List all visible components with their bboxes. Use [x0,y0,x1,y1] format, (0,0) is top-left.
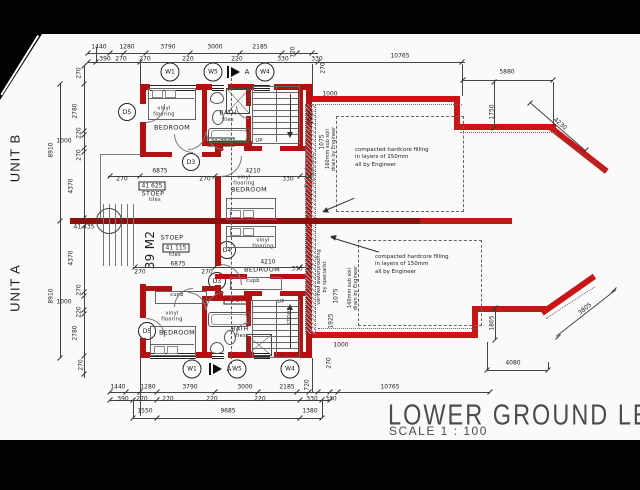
wall-segment [215,176,221,218]
top-mat [0,0,640,34]
dimension-label: 3790 [160,44,175,51]
section-bar-bottom [209,363,211,375]
dimension-label: 390 [117,396,128,403]
window-marker-w4-bottom: W4 [281,360,300,379]
wall-segment [140,122,146,154]
dimension-label: 10765 [380,384,399,391]
basin [210,92,224,104]
window [212,85,224,91]
dim-tick [57,355,63,361]
dimension-label: 220 [76,127,83,138]
dimension-label: 1550 [137,408,152,415]
pillow [165,90,176,98]
corner-fold [0,34,42,100]
dimension-label: 270 [162,396,173,403]
dimension-line [487,370,548,371]
wall-segment [244,291,262,296]
pillow [154,346,165,354]
wall-segment [196,352,212,358]
dimension-label: 220 [231,56,242,63]
bed-line [226,236,274,237]
stair-tread [252,330,298,331]
stair-tread [252,110,298,111]
dimension-label: 2185 [252,44,267,51]
pillow [230,210,241,218]
shower-duct-box [226,88,250,114]
stair-tread [252,122,298,123]
line [100,154,101,218]
dimension-line [312,358,313,392]
line [100,154,141,155]
dimension-label: 1925 [328,313,335,328]
dimension-label: 1075 [319,134,326,149]
line [552,131,608,172]
wall-segment [454,124,556,130]
dimension-label: 270 [201,269,212,276]
wall-segment [312,332,478,338]
cupboard [230,277,282,290]
dimension-label: 1440 [91,44,106,51]
room-label-area-a: 39 M2 [144,231,158,270]
dimension-label: 4370 [68,250,75,265]
dimension-label: 270 [78,359,85,370]
toilet [212,110,224,125]
dimension-label: 1925 [308,109,315,124]
line [121,204,122,266]
dimension-label: 720 [290,46,297,57]
dimension-label: 2780 [72,103,79,118]
dimension-label: 9685 [220,408,235,415]
dimension-label: 330 [291,266,302,273]
dimension-label: 1380 [302,408,317,415]
manhole-circle [96,208,122,234]
section-label-top: A [245,68,250,76]
pillow [243,228,254,236]
wall-segment [140,152,172,157]
dimension-label: 1075 [333,288,340,303]
line [312,104,462,105]
pillow [243,210,254,218]
section-label-bottom: A [227,365,232,373]
door-arc [206,292,224,310]
wall-segment [215,224,221,266]
dimension-label: 220 [182,56,193,63]
dimension-label: 2185 [279,384,294,391]
stair-tread [252,348,298,349]
dimension-label: 330 [325,396,336,403]
floor-plan-sheet: UNIT B UNIT A vinyl flooring BEDROOM BAT… [0,0,640,490]
line [127,204,128,266]
dimension-label: 8910 [48,288,55,303]
dimension-label: 1000 [333,342,348,349]
section-bar-top [227,66,229,78]
door-marker-d3-b: D3 [182,153,200,171]
dim-tick [319,415,325,421]
section-arrow-icon [231,67,240,77]
wall-segment [280,146,306,151]
dimension-label: 270 [199,176,210,183]
dimension-label: 330 [282,176,293,183]
room-label-stoep-a: STOEP [161,234,184,241]
bed-line [226,208,274,209]
window-marker-w4-top: W4 [256,63,275,82]
dim-tick [487,389,493,395]
dimension-label: 8910 [48,142,55,157]
door-marker-d5-b: D5 [118,103,136,121]
hardcore-region [358,240,482,326]
dimension-label: 1805 [489,315,496,330]
wall-segment [140,90,146,104]
dimension-label: 1280 [119,44,134,51]
stair-arrow-head [287,304,293,310]
dimension-label: 1000 [56,138,71,145]
wall-segment [215,285,221,291]
dimension-label: 330 [277,56,288,63]
bathtub-inner [211,130,247,141]
bed-line [148,98,194,99]
dimension-line [110,392,490,393]
room-label-vinyl-a1: vinyl flooring [160,311,184,323]
dimension-label: 270 [76,67,83,78]
dimension-label: 4210 [245,168,260,175]
wall-segment [202,152,216,157]
dimension-line [140,62,141,84]
level-b-stoep: 41 625 [139,182,166,191]
dimension-label: 270 [139,56,150,63]
stair-arrow-head [287,132,293,138]
dimension-label: 3790 [182,384,197,391]
dim-tick [545,367,551,373]
basin [210,342,224,354]
dimension-label: 330 [306,396,317,403]
dimension-line [312,64,313,96]
section-arrow-icon [213,364,222,374]
stair-tread [252,318,298,319]
dimension-label: 4080 [505,360,520,367]
dimension-label: 220 [254,396,265,403]
level-a-stoep: 41 115 [163,244,190,253]
stair-tread [252,128,298,129]
dimension-label: 270 [134,269,145,276]
wall-segment [280,291,306,296]
room-label-bedroom-b1: BEDROOM [154,124,190,131]
stair-rail [276,86,277,142]
wall-segment [140,338,146,358]
stair-rail [276,300,277,356]
dimension-label: 270 [76,149,83,160]
dimension-label: 10765 [390,53,409,60]
hardcore-region [336,116,464,212]
dimension-line [487,342,488,370]
dimension-line [463,80,553,81]
dimension-label: 1280 [140,384,155,391]
dimension-label: 270 [76,284,83,295]
stair-arrow [290,94,291,134]
stair-tread [252,342,298,343]
stair-arrow [290,308,291,348]
room-label-bedroom-b2: BEDROOM [231,186,267,193]
window-marker-w1-top: W1 [161,63,180,82]
dimension-label: 270 [116,176,127,183]
window-marker-w1-bottom: W1 [183,360,202,379]
dimension-label: 4210 [260,259,275,266]
dimension-label: 3000 [237,384,252,391]
pillow [167,346,178,354]
stair-tread [252,98,298,99]
dimension-label: 270 [320,62,327,73]
waterproofing-note-a: verified waterproofing by specialist [316,249,328,305]
dimension-label: 1000 [322,91,337,98]
stair-tread [252,312,298,313]
dimension-line [84,66,85,218]
dimension-label: 3000 [207,44,222,51]
stair-tread [252,92,298,93]
room-label-stoep-tiles-a: tiles [169,253,181,259]
toilet [224,330,236,345]
dimension-label: 6875 [170,261,185,268]
room-label-stoep-tiles-b: tiles [149,198,161,204]
line [318,328,478,329]
line [460,132,556,133]
dimension-label: 1000 [56,299,71,306]
dimension-label: 220 [76,306,83,317]
drawing-scale: SCALE 1 : 100 [389,424,488,438]
bed-line [150,344,194,345]
waterproofing-strip [305,224,316,334]
wall-segment [244,146,262,151]
wall-segment [420,218,512,224]
dimension-label: 4370 [68,178,75,193]
dimension-label: 5880 [499,69,514,76]
unit-b-label: UNIT B [8,134,23,182]
dimension-label: 2780 [72,325,79,340]
stair-tread [252,104,298,105]
line [133,204,134,266]
dimension-label: 6875 [152,168,167,175]
dim-tick [492,337,498,343]
dimension-line [133,418,322,419]
stair-tread [252,116,298,117]
bottom-mat [0,440,640,490]
dimension-label: 270 [136,396,147,403]
pillow [230,228,241,236]
dimension-label: 1750 [489,104,496,119]
door-arc [188,132,206,150]
stair-tread [252,324,298,325]
dimension-label: 390 [99,56,110,63]
unit-a-label: UNIT A [8,264,23,312]
bathtub-inner [211,314,247,325]
pillow [152,90,163,98]
cupboard [155,291,207,304]
dimension-label: 270 [326,357,333,368]
dimension-label: 720 [304,379,311,390]
dimension-label: 1440 [110,384,125,391]
window-marker-w5-top: W5 [204,63,223,82]
stair-tread [252,336,298,337]
wall-segment [472,306,548,312]
dimension-label: 270 [115,56,126,63]
dimension-label: 220 [206,396,217,403]
